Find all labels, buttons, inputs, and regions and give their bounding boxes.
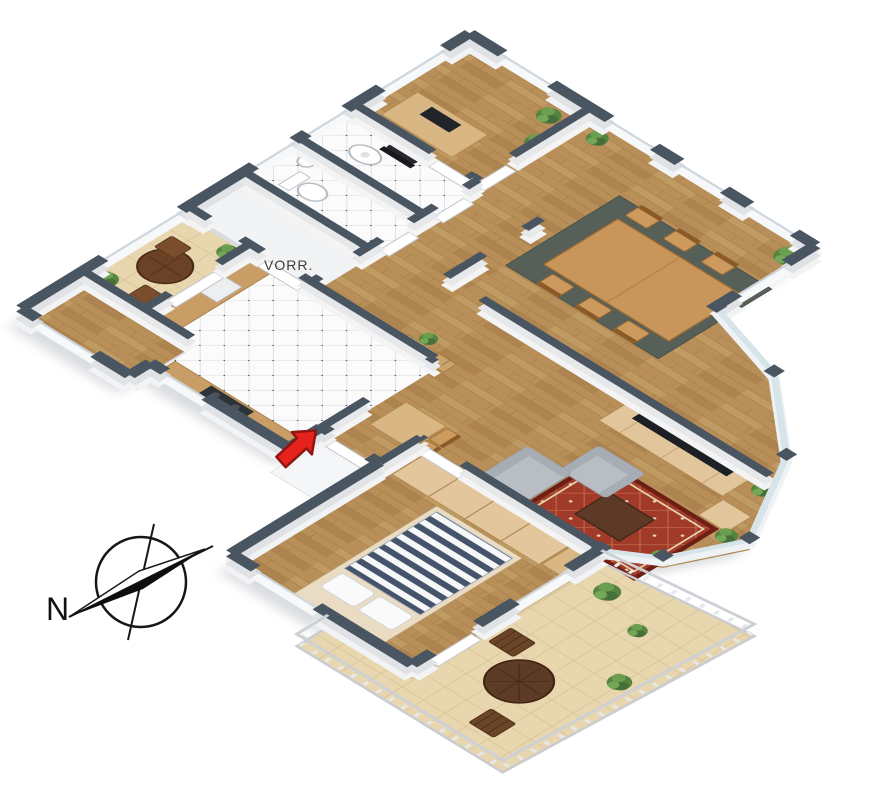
compass-north-label: N <box>46 591 69 627</box>
floorplan-3d-rendering: VORR. N <box>0 0 884 801</box>
vorraum-label: VORR. <box>264 257 313 273</box>
compass-rose <box>69 524 213 640</box>
floorplan-page: VORR. N <box>0 0 884 801</box>
